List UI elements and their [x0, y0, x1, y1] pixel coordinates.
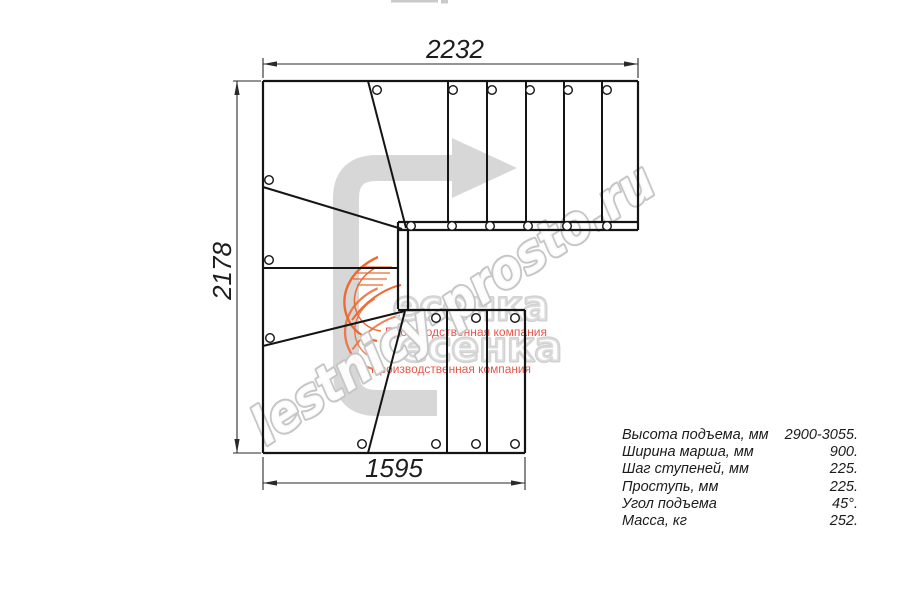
dim-arrow-icon [234, 81, 239, 95]
winder-line [263, 187, 402, 229]
dimension-left: 2178 [207, 81, 261, 453]
screw-hole [488, 86, 497, 95]
spec-value: 45°. [832, 496, 858, 513]
dim-arrow-icon [624, 61, 638, 66]
dimension-bottom: 1595 [263, 453, 525, 490]
screw-hole [486, 222, 495, 231]
spec-row: Шаг ступеней, мм 225. [622, 461, 858, 478]
dimension-label-top: 2232 [425, 34, 484, 64]
screw-hole [265, 176, 274, 185]
screw-hole [524, 222, 533, 231]
screw-hole [511, 440, 520, 449]
dim-arrow-icon [263, 480, 277, 485]
screw-hole [432, 440, 441, 449]
spec-label: Проступь, мм [622, 479, 718, 496]
spec-row: Проступь, мм 225. [622, 479, 858, 496]
spec-table: Высота подъема, мм 2900-3055. Ширина мар… [622, 427, 858, 530]
dim-arrow-icon [511, 480, 525, 485]
screw-hole [266, 334, 275, 343]
screw-hole [265, 256, 274, 265]
direction-arrow-head [452, 138, 517, 198]
spec-value: 252. [830, 513, 858, 530]
dimension-top: 2232 [263, 34, 638, 78]
screw-hole [358, 440, 367, 449]
screw-hole [603, 86, 612, 95]
spec-row: Ширина марша, мм 900. [622, 444, 858, 461]
spec-value: 225. [830, 479, 858, 496]
spec-label: Угол подъема [622, 496, 717, 513]
screw-hole [449, 86, 458, 95]
screw-hole [603, 222, 612, 231]
dim-arrow-icon [234, 439, 239, 453]
spec-value: 2900-3055. [785, 427, 858, 444]
spec-row: Угол подъема 45°. [622, 496, 858, 513]
tread-line [368, 81, 406, 228]
screw-hole [511, 314, 520, 323]
dimension-label-bottom: 1595 [365, 453, 423, 483]
spec-label: Шаг ступеней, мм [622, 461, 749, 478]
screw-hole [432, 314, 441, 323]
screw-hole [563, 222, 572, 231]
top-edge-artifact [391, 0, 448, 4]
screw-hole [407, 222, 416, 231]
spec-value: 225. [830, 461, 858, 478]
spec-label: Масса, кг [622, 513, 687, 530]
screw-hole [373, 86, 382, 95]
spec-row: Высота подъема, мм 2900-3055. [622, 427, 858, 444]
dim-arrow-icon [263, 61, 277, 66]
spec-row: Масса, кг 252. [622, 513, 858, 530]
screw-hole [526, 86, 535, 95]
staircase-plan-drawing: есенка Производственная компания есенка … [0, 0, 900, 600]
screw-hole [472, 440, 481, 449]
spec-label: Высота подъема, мм [622, 427, 769, 444]
screw-hole [448, 222, 457, 231]
dimension-label-left: 2178 [207, 242, 237, 301]
spec-value: 900. [830, 444, 858, 461]
screw-hole [564, 86, 573, 95]
screw-hole [472, 314, 481, 323]
spec-label: Ширина марша, мм [622, 444, 754, 461]
